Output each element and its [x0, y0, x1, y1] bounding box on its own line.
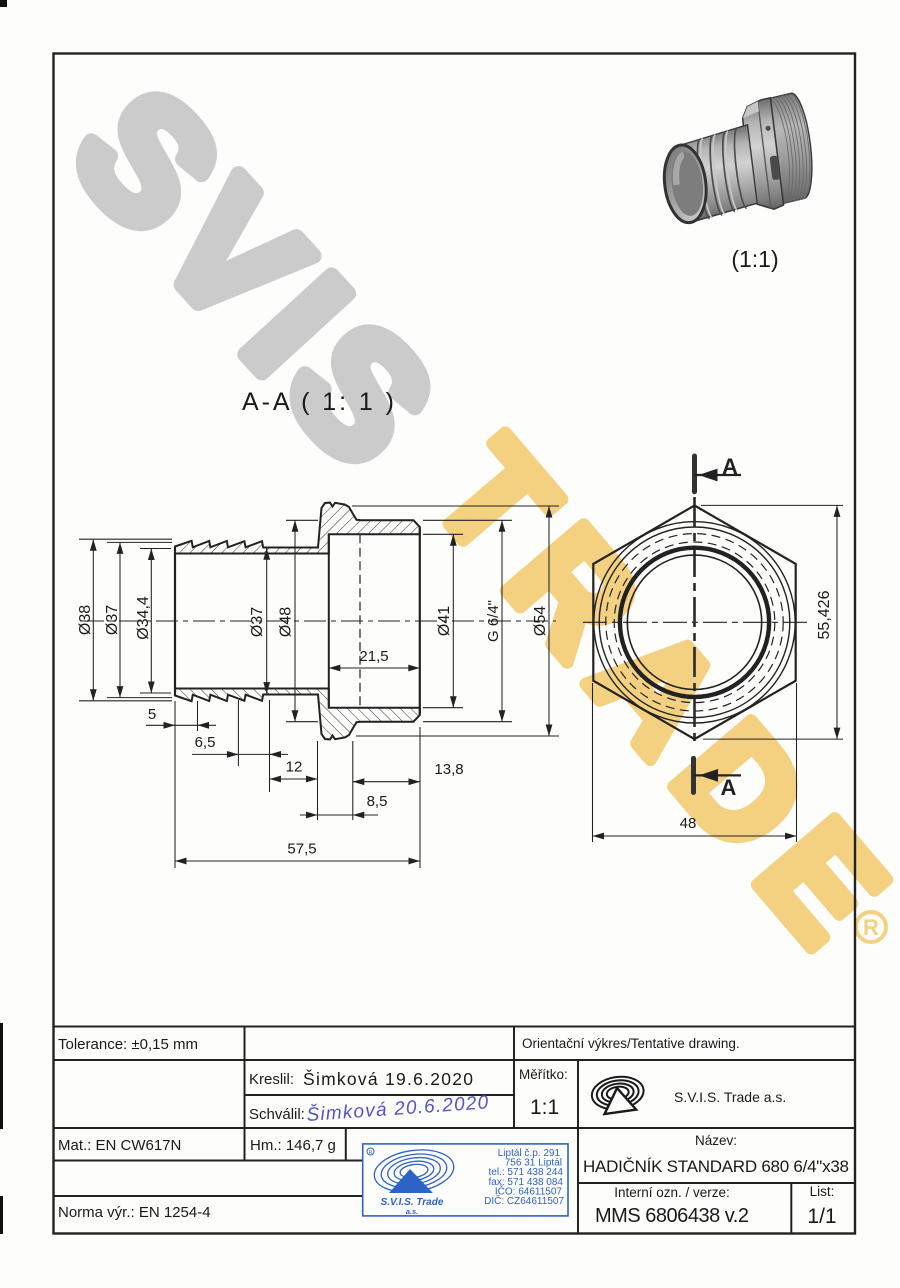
svg-text:13,8: 13,8 [434, 761, 463, 778]
svg-text:R: R [369, 1150, 373, 1156]
svg-text:Schválil:: Schválil: [249, 1106, 305, 1123]
svg-text:Norma výr.: EN 1254-4: Norma výr.: EN 1254-4 [58, 1204, 211, 1221]
svg-text:List:: List: [810, 1184, 835, 1199]
svg-text:MMS 6806438 v.2: MMS 6806438 v.2 [595, 1205, 749, 1227]
svg-text:48: 48 [680, 815, 697, 832]
svg-text:Orientační výkres/Tentative dr: Orientační výkres/Tentative drawing. [522, 1036, 740, 1051]
svg-text:21,5: 21,5 [359, 648, 388, 665]
svg-text:HADIČNÍK STANDARD 680 6/4"x38: HADIČNÍK STANDARD 680 6/4"x38 [583, 1157, 849, 1176]
svg-text:Ø41: Ø41 [436, 606, 453, 636]
svg-text:Ø38: Ø38 [77, 605, 94, 635]
svg-text:S.V.I.S. Trade a.s.: S.V.I.S. Trade a.s. [674, 1089, 786, 1105]
svg-text:12: 12 [286, 759, 303, 776]
svg-text:R: R [863, 915, 879, 940]
svg-text:TRADE: TRADE [402, 411, 900, 989]
svg-text:Ø34,4: Ø34,4 [135, 596, 152, 640]
svg-text:1:1: 1:1 [530, 1096, 559, 1119]
svg-text:Ø48: Ø48 [278, 607, 295, 637]
svg-text:5: 5 [148, 706, 156, 723]
svg-text:Šimková 19.6.2020: Šimková 19.6.2020 [303, 1068, 473, 1089]
svg-text:Tolerance: ±0,15 mm: Tolerance: ±0,15 mm [58, 1036, 198, 1053]
svg-text:Ø54: Ø54 [532, 606, 549, 636]
svg-text:Název:: Název: [695, 1133, 737, 1148]
svg-text:Interní ozn. / verze:: Interní ozn. / verze: [614, 1185, 730, 1200]
svg-text:DIČ: CZ64611507: DIČ: CZ64611507 [484, 1194, 564, 1207]
svg-text:Ø37: Ø37 [249, 607, 266, 637]
svg-text:G 6/4": G 6/4" [485, 600, 502, 642]
svg-text:55,426: 55,426 [816, 590, 833, 639]
svg-text:Kreslil:: Kreslil: [249, 1071, 294, 1088]
svg-text:8,5: 8,5 [367, 793, 388, 810]
svg-text:A: A [721, 775, 737, 800]
svg-text:a.s.: a.s. [406, 1207, 419, 1216]
svg-text:A-A ( 1: 1 ): A-A ( 1: 1 ) [242, 388, 394, 416]
svg-text:SVIS: SVIS [38, 55, 478, 510]
svg-text:Ø37: Ø37 [104, 605, 121, 635]
svg-text:A: A [722, 454, 738, 479]
svg-text:Mat.: EN CW617N: Mat.: EN CW617N [58, 1137, 181, 1154]
svg-text:Šimková 20.6.2020: Šimková 20.6.2020 [306, 1091, 490, 1126]
svg-text:6,5: 6,5 [195, 734, 216, 751]
svg-text:Měřítko:: Měřítko: [519, 1067, 568, 1082]
svg-text:Hm.: 146,7 g: Hm.: 146,7 g [250, 1137, 336, 1154]
svg-text:(1:1): (1:1) [731, 246, 778, 272]
svg-text:57,5: 57,5 [287, 841, 316, 858]
svg-text:1/1: 1/1 [807, 1205, 836, 1228]
